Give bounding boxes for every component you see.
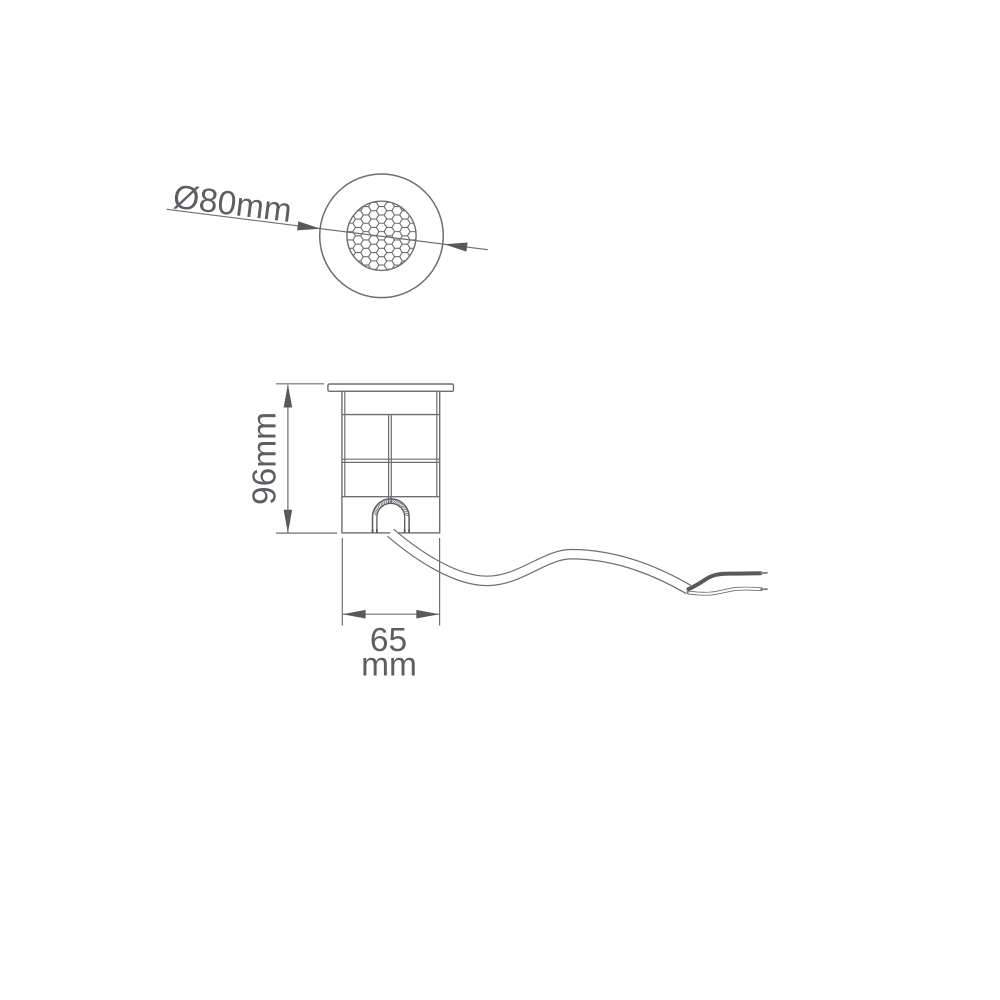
svg-text:mm: mm (361, 647, 417, 684)
svg-text:Ø80mm: Ø80mm (171, 179, 294, 230)
svg-text:96mm: 96mm (246, 412, 283, 505)
